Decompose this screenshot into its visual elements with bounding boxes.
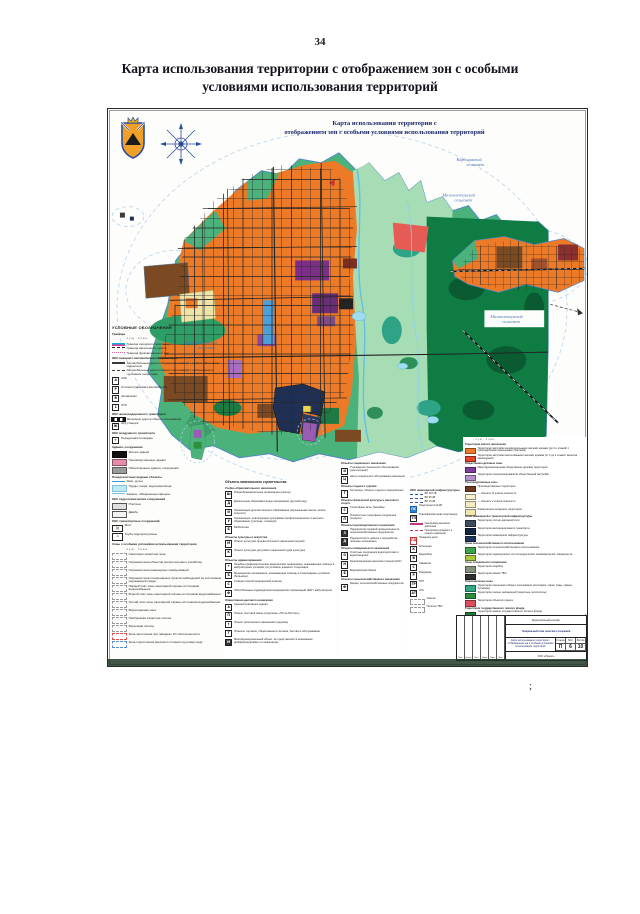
legend-label: Предприятия пищевой промышленности, сель… — [350, 529, 405, 535]
legend-swatch — [112, 617, 127, 624]
page-title: Карта использования территории с отображ… — [85, 60, 555, 96]
legend-label: Центр социального обслуживания населения — [350, 476, 405, 479]
legend-swatch: ПД — [410, 537, 417, 544]
legend-label: Граница населенного пункта — [127, 347, 221, 350]
legend-row: Автомобильные дороги общего пользования … — [112, 362, 221, 369]
legend-row: Б Библиотека — [225, 526, 335, 534]
map-sheet-title: Карта использования территории с отображ… — [218, 120, 551, 138]
legend-swatch — [465, 600, 476, 607]
legend-row: Ш Общеобразовательные организации (школы… — [225, 491, 335, 499]
legend-swatch — [112, 481, 125, 482]
legend-swatch: К — [410, 546, 417, 553]
legend-swatch — [112, 503, 127, 510]
legend-obj2-rows: Объекты социального назначения И Учрежде… — [341, 463, 405, 591]
legend-label: Резервуар — [419, 572, 460, 575]
compass-rose-icon — [160, 123, 202, 165]
legend-swatch: ✈ — [112, 437, 119, 444]
legend-row: Общественно-делового назначения — [225, 599, 335, 602]
legend-swatch: М — [225, 639, 232, 646]
legend-swatch: АТ — [410, 590, 417, 597]
legend-swatch — [112, 511, 127, 518]
legend-label: Объекты торговли, общественного питания,… — [234, 630, 335, 633]
legend-label: Библиотека — [234, 526, 335, 529]
legend-swatch: Д — [225, 500, 232, 507]
legend-swatch: А — [112, 377, 119, 384]
legend-left-rows: Границы сущ. план. Граница городского по… — [112, 333, 221, 648]
page-title-line2: условиями использования территорий — [202, 79, 438, 94]
legend-row: У Организации, реализующие программы про… — [225, 517, 335, 525]
legend-swatch — [112, 633, 127, 640]
legend-swatch: ≍ — [112, 533, 123, 540]
legend-label: Посадочная площадка — [121, 437, 221, 440]
legend-row: Объекты здравоохранения — [225, 559, 335, 562]
legend-swatch: М — [225, 540, 232, 547]
legend-row: сущ. план. — [112, 337, 221, 341]
legend-capital-construction: Объекты капитального строительства Учебн… — [223, 480, 337, 658]
legend-label: Зона подтопления (высокого стояния грунт… — [129, 641, 221, 644]
legend-label: Скважина — [419, 563, 460, 566]
legend-row: Ф Фермы, сельскохозяйственные предприяти… — [341, 583, 405, 591]
legend-row: Н Канализационная насосная станция (КНС) — [341, 561, 405, 569]
legend-swatch: Д — [341, 538, 348, 545]
legend-row: Охранная зона инженерных коммуникаций — [112, 569, 221, 576]
legend-label: Объекты культуры и искусства — [225, 536, 335, 539]
legend-label: Территория лесных насаждений (защитные л… — [478, 592, 585, 595]
legend-label: Водонапорная башня — [350, 570, 405, 573]
stamp-contract: Муниципальный контракт — [506, 616, 586, 625]
legend-row: Газопровод среднего и низкого давления — [410, 530, 460, 536]
legend-label: ГРП — [419, 581, 460, 584]
stamp-sheet-name: Карта использования территории с отображ… — [506, 638, 556, 651]
legend-label: Коммунально-складские территории — [478, 509, 585, 512]
legend-row: Б Водонапорная башня — [341, 570, 405, 578]
stage-value: П — [556, 644, 566, 651]
legend-label: Фермы, сельскохозяйственные предприятия — [350, 583, 405, 586]
legend-label: Территория улично-дорожной сети — [478, 520, 585, 523]
svg-text:сельсовет: сельсовет — [502, 319, 520, 324]
legend-row: Б Медицинские организации, оказывающие п… — [225, 572, 335, 580]
legend-swatch: С — [225, 581, 232, 588]
legend-label: Территория садоводческих или огородничес… — [478, 554, 585, 557]
legend-label: Общеобразовательные организации (школы) — [234, 491, 335, 494]
legend-row: И Организации дополнительного образовани… — [225, 509, 335, 517]
legend-swatch — [465, 486, 476, 493]
legend-label: Дамба — [129, 511, 221, 514]
legend-obj1-rows: Учебно-образовательного назначения Ш Общ… — [225, 487, 335, 646]
legend-swatch — [410, 530, 423, 531]
legend-row: + Лечебно-профилактические медицинские о… — [225, 563, 335, 571]
legend-label: Объект культурно-досугового назначения (… — [234, 549, 335, 552]
legend-swatch — [112, 641, 127, 648]
legend-swatch — [112, 362, 125, 364]
legend-swatch: Р — [112, 386, 119, 393]
legend-swatch — [410, 599, 425, 606]
legend-label: Газопровод высокого давления — [425, 523, 460, 529]
legend-row: Зоны с особыми условиями использования т… — [112, 543, 221, 546]
legend-label: Береговая полоса — [129, 625, 221, 628]
legend-label: сущ. план. — [127, 548, 221, 551]
legend-row: Плотина — [112, 503, 221, 510]
legend-row: Учебно-образовательного назначения — [225, 487, 335, 490]
legend-label: Плоскостные спортивные сооружения (стади… — [350, 515, 405, 521]
legend-label: — объекты IV класса опасности — [478, 493, 585, 496]
legend-swatch: Н — [341, 561, 348, 568]
legend-row: Автомобильные дороги общего пользования … — [112, 369, 221, 376]
legend-row: В Автовокзал — [112, 395, 221, 403]
legend-label: Обособленные подразделения медицинских о… — [234, 589, 335, 592]
legend-swatch: З — [341, 530, 348, 537]
legend-label: Учреждения социального обслуживания (дом… — [350, 467, 405, 473]
legend-swatch — [112, 561, 127, 568]
legend-label: АТС — [419, 590, 460, 593]
legend-title: Объекты капитального строительства — [225, 481, 335, 485]
legend-label: ОКС воздушного транспорта — [112, 432, 221, 435]
legend-label: Стоянки (парковки) автомобилей — [121, 386, 221, 389]
stamp-grid-label: Дата — [497, 616, 505, 660]
legend-swatch — [112, 343, 125, 346]
legend-label: Железные дороги общего пользования — [127, 418, 221, 421]
legend-row: Ф Обособленные подразделения медицинских… — [225, 589, 335, 597]
legend-social-objects: Объекты социального назначения И Учрежде… — [339, 460, 407, 658]
legend-label: Предприятия по добыче и переработке поле… — [350, 538, 405, 544]
legend-row: А Административные здания — [225, 603, 335, 611]
legend-swatch: Ш — [225, 491, 232, 498]
legend-swatch — [112, 601, 127, 608]
legend-label: Ж/д станция — [121, 422, 221, 425]
legend-label: Охранная зона стационарных пунктов наблю… — [129, 577, 221, 584]
eastern-settlement — [451, 237, 585, 293]
legend-label: Многофункциональный объект, не представл… — [234, 638, 335, 644]
legend-row: Т Объекты торговли, общественного питани… — [225, 630, 335, 638]
legend-row: Ж Ж/д станция — [112, 422, 221, 430]
legend-row: Жилые здания — [112, 451, 221, 458]
sheets-value: 10 — [576, 644, 586, 651]
stamp-grid-label: Кол.уч — [465, 616, 473, 660]
legend-row: ≍ Трубы водопропускные — [112, 533, 221, 541]
legend-swatch: Ф — [341, 584, 348, 591]
legend-row: Санитарно-защитная зона — [112, 553, 221, 560]
legend-label: Зона затопления при паводках 1% обеспече… — [129, 633, 221, 636]
legend-label: Объект культурно-просветительного назнач… — [234, 540, 335, 543]
legend-row: ВЛ 35 кВ — [410, 497, 460, 500]
legend-label: Зоны с особыми условиями использования т… — [112, 543, 221, 546]
legend-row: Второй пояс зоны санитарной охраны источ… — [112, 593, 221, 600]
legend-swatch: А — [225, 604, 232, 611]
legend-label: Дошкольные образовательные организации (… — [234, 500, 335, 503]
legend-row: † Объект религиозного назначения (церков… — [225, 621, 335, 629]
legend-swatch — [465, 566, 476, 573]
legend-row: О Очистные сооружения водоподготовки и в… — [341, 552, 405, 560]
legend-label: АЗС — [121, 377, 221, 380]
legend-label: Очистные сооружения водоподготовки и вод… — [350, 552, 405, 558]
legend-row: Третий пояс зоны санитарной охраны источ… — [112, 601, 221, 608]
legend-label: Котельная — [419, 546, 460, 549]
stamp-pages: Стадия Лист Листов П 6 10 — [556, 638, 586, 651]
legend-row: Зона затопления при паводках 1% обеспече… — [112, 633, 221, 640]
stamp-grid-label: Лист — [473, 616, 481, 660]
legend-label: ОКС внешнего автомобильного транспорта — [112, 357, 221, 360]
legend-swatch — [465, 467, 476, 474]
legend-label: Территория застройки малоэтажными жилыми… — [478, 455, 585, 461]
legend-row: И Учреждения социального обслуживания (д… — [341, 467, 405, 475]
legend-row: Дамба — [112, 511, 221, 518]
legend-row: Первый пояс зоны санитарной охраны источ… — [112, 585, 221, 592]
legend-swatch: С — [410, 564, 417, 571]
legend-swatch — [112, 577, 127, 584]
page-number: 34 — [0, 36, 640, 48]
legend-row: Общественные здания, сооружения — [112, 467, 221, 474]
legend-functional-zones: сущ. план. Территории жилого назначения … — [463, 437, 587, 614]
direction-arrow — [550, 304, 583, 315]
legend-label: Объект религиозного назначения (церковь) — [234, 621, 335, 624]
legend-row: ВЛ 110 кВ — [410, 493, 460, 496]
legend-swatch: И — [341, 468, 348, 475]
legend-label: Спортивные залы, бассейны — [350, 507, 405, 510]
legend-label: Автовокзал — [121, 395, 221, 398]
legend-row: 1 СТО — [112, 404, 221, 412]
stamp-grid-label: Подп. — [489, 616, 497, 660]
legend-swatch: Б — [225, 526, 232, 533]
legend-swatch — [112, 352, 125, 353]
legend-swatch — [112, 493, 125, 494]
legend-swatch: П — [341, 516, 348, 523]
legend-swatch — [410, 607, 425, 614]
legend-label: Общественно-делового назначения — [225, 599, 335, 602]
legend-swatch: Т — [225, 630, 232, 637]
legend-label: Территория железнодорожного транспорта — [478, 528, 585, 531]
legend-label: Плотина — [129, 503, 221, 506]
legend-label: Территория инженерной инфраструктуры — [478, 535, 585, 538]
legend-label: Третий пояс зоны санитарной охраны источ… — [129, 601, 221, 604]
legend-swatch: 1 — [112, 404, 119, 411]
legend-label: — объекты V класса опасности — [478, 501, 585, 504]
legend-swatch — [465, 448, 476, 455]
legend-swatch — [112, 609, 127, 616]
legend-row: ПД Пожарное депо — [410, 537, 460, 545]
legend-swatch: В — [112, 395, 119, 402]
legend-swatch — [112, 593, 127, 600]
legend-swatch: Б — [341, 570, 348, 577]
legend-swatch — [410, 494, 423, 495]
legend-swatch: Ц — [341, 476, 348, 483]
legend-label: Пруды, озера, водохранилища — [129, 485, 221, 488]
legend-label: Территория кладбищ — [478, 566, 585, 569]
legend-label: Лечебно-профилактические медицинские орг… — [234, 563, 335, 569]
legend-label: Объект почтовой связи (отделение «Почта … — [234, 612, 335, 615]
legend-title: УСЛОВНЫЕ ОБОЗНАЧЕНИЯ — [112, 326, 221, 330]
legend-label: Объекты здравоохранения — [225, 559, 335, 562]
legend-row: Территория объектов отдыха — [465, 600, 585, 607]
legend-swatch — [465, 547, 476, 554]
legend-swatch — [112, 459, 127, 466]
legend-row: В Водозабор — [410, 554, 460, 562]
legend-swatch — [112, 585, 127, 592]
legend-row: Зона подтопления (высокого стояния грунт… — [112, 641, 221, 648]
legend-row: Производственные здания — [112, 459, 221, 466]
stamp-grid-label: Изм. — [457, 616, 465, 660]
legend-label: Канализационная насосная станция (КНС) — [350, 561, 405, 564]
legend-swatch: В — [410, 555, 417, 562]
legend-row: К Объект культурно-досугового назначения… — [225, 549, 335, 557]
legend-label: Охранная зона инженерных коммуникаций — [129, 569, 221, 572]
legend-swatch: П — [225, 612, 232, 619]
legend-row: М Многофункциональный объект, не предста… — [225, 638, 335, 646]
legend-label: Полигон ТБО — [427, 606, 460, 609]
legend-row: Объекты физической культуры и массового … — [341, 500, 405, 506]
legend-swatch — [112, 467, 127, 474]
legend-row: Р Стоянки (парковки) автомобилей — [112, 386, 221, 394]
legend-swatch — [112, 347, 125, 348]
legend-swatch: ПС — [410, 506, 417, 513]
legend-swatch: Б — [225, 572, 232, 579]
stamp-grid-label: №док — [481, 616, 489, 660]
legend-row: Водоохранная зона — [112, 609, 221, 616]
legend-conventional-signs: УСЛОВНЫЕ ОБОЗНАЧЕНИЯ Границы сущ. план. … — [112, 326, 221, 656]
legend-swatch: У — [225, 518, 232, 525]
legend-row: Прибрежная защитная полоса — [112, 617, 221, 624]
legend-label: Граница функциональных зон — [127, 352, 221, 355]
legend-swatch: ТП — [410, 515, 417, 522]
legend-row: К Котельная — [410, 546, 460, 554]
legend-label: Свалка — [427, 598, 460, 601]
legend-label: Трубы водопропускные — [125, 533, 221, 536]
legend-row: Пруды, озера, водохранилища — [112, 485, 221, 492]
legend-label: Первый пояс зоны санитарной охраны источ… — [129, 585, 221, 592]
legend-row: П Плоскостные спортивные сооружения (ста… — [341, 515, 405, 523]
legend-label: сущ. план. — [127, 337, 221, 340]
legend-row: П Объект почтовой связи (отделение «Почт… — [225, 612, 335, 620]
legend-row: Газопровод высокого давления — [410, 523, 460, 529]
legend-swatch — [112, 625, 127, 632]
legend-label: Административные здания — [234, 603, 335, 606]
legend-label: Организации, реализующие программы профе… — [234, 517, 335, 523]
legend-label: Мост — [125, 524, 221, 527]
svg-text:сельсовет: сельсовет — [467, 162, 485, 167]
legend-row: Граница населенного пункта — [112, 347, 221, 350]
legend-eng-rows: ВЛ 110 кВ ВЛ 35 кВ ВЛ 10 кВ ПС Подстанци… — [410, 493, 460, 613]
stamp-grid: Изм.Кол.учЛист№докПодп.Дата — [457, 616, 505, 660]
legend-row: ОКС внешнего автомобильного транспорта — [112, 357, 221, 360]
map-sheet: Кардоникский сельсовет Малозеленчукский … — [107, 108, 588, 667]
legend-swatch: )( — [112, 525, 123, 532]
coat-of-arms-icon — [119, 117, 147, 159]
legend-label: Территория застройки индивидуальными жил… — [478, 448, 585, 454]
stray-mark: ; — [529, 680, 532, 692]
legend-label: Прибрежная защитная полоса — [129, 617, 221, 620]
legend-label: Производственные территории — [478, 486, 585, 489]
legend-row: Полигон ТБО — [410, 606, 460, 613]
legend-swatch — [112, 370, 125, 371]
legend-row: ✈ Посадочная площадка — [112, 437, 221, 445]
legend-swatch — [410, 523, 423, 524]
legend-row: ТП Трансформаторная подстанция — [410, 514, 460, 522]
legend-label: Территория озеленения общего пользования… — [478, 585, 585, 591]
legend-swatch — [410, 498, 423, 499]
legend-swatch: + — [225, 563, 232, 570]
legend-label: Территория земель государственного лесно… — [478, 611, 585, 614]
legend-label: Трансформаторная подстанция — [419, 514, 460, 517]
legend-row: ОКС воздушного транспорта — [112, 432, 221, 435]
legend-label: Территория сельскохозяйственного использ… — [478, 547, 585, 550]
legend-label: Производственные здания — [129, 459, 221, 462]
legend-swatch — [465, 528, 476, 535]
legend-row: Береговая полоса — [112, 625, 221, 632]
legend-row: А АЗС — [112, 377, 221, 385]
stamp-revision-grid: Изм.Кол.учЛист№докПодп.Дата — [457, 616, 506, 660]
legend-row: Территория улично-дорожной сети — [465, 520, 585, 527]
legend-row: С Станция скорой медицинской помощи — [225, 580, 335, 588]
legend-label: Гостиницы, объекты отдыха и оздоровления — [350, 490, 405, 493]
legend-zones-rows: сущ. план. Территории жилого назначения … — [465, 439, 585, 638]
legend-label: Общественные здания, сооружения — [129, 467, 221, 470]
legend-row: — объекты V класса опасности — [465, 501, 585, 508]
legend-swatch: Г — [341, 490, 348, 497]
legend-label: Территория специализированной общественн… — [478, 474, 585, 477]
legend-swatch — [465, 585, 476, 592]
legend-label: Автомобильные дороги общего пользования … — [127, 369, 221, 376]
legend-label: Жилые здания — [129, 451, 221, 454]
legend-swatch: К — [225, 549, 232, 556]
legend-label: Объекты физической культуры и массового … — [341, 500, 405, 506]
legend-row: М Объект культурно-просветительного назн… — [225, 540, 335, 548]
legend-label: Пожарное депо — [419, 537, 460, 540]
legend-label: Станция скорой медицинской помощи — [234, 580, 335, 583]
legend-label: Водоохранная зона — [129, 609, 221, 612]
legend-swatch — [465, 494, 476, 501]
legend-label: Территория объектов отдыха — [478, 600, 585, 603]
page-title-line1: Карта использования территории с отображ… — [122, 61, 519, 76]
legend-row: ПС Подстанция 110 кВ — [410, 505, 460, 513]
legend-label: Территория свалки ТБО — [478, 573, 585, 576]
legend-label: Охранная зона объектов электросетевого х… — [129, 561, 221, 564]
legend-swatch — [465, 520, 476, 527]
legend-row: Охранная зона стационарных пунктов наблю… — [112, 577, 221, 584]
legend-label: Автомобильные дороги общего пользования … — [127, 362, 221, 369]
stamp-project: Генеральный план сельского поселения — [506, 625, 586, 638]
legend-swatch: ГР — [410, 581, 417, 588]
legend-swatch: Р — [410, 572, 417, 579]
legend-row: С Скважина — [410, 563, 460, 571]
legend-swatch — [410, 502, 423, 503]
legend-swatch: С — [341, 507, 348, 514]
legend-label: Многофункциональная общественно-деловая … — [478, 467, 585, 470]
legend-engineering-infrastructure: ОКС инженерной инфраструктуры ВЛ 110 кВ … — [408, 488, 462, 656]
legend-label: сущ. план. — [476, 439, 585, 442]
legend-swatch: Ф — [225, 590, 232, 597]
legend-row: Граница функциональных зон — [112, 352, 221, 355]
legend-label: Каналы, обводненные карьеры — [127, 493, 221, 496]
legend-label: Водозабор — [419, 554, 460, 557]
legend-row: Каналы, обводненные карьеры — [112, 493, 221, 496]
document-page: 34 Карта использования территории с отоб… — [0, 0, 640, 914]
legend-label: Подстанция 110 кВ — [419, 505, 460, 508]
legend-swatch — [465, 501, 476, 508]
legend-label: Санитарно-защитная зона — [129, 553, 221, 556]
legend-row: АТ АТС — [410, 590, 460, 598]
legend-swatch: Ж — [112, 423, 119, 430]
legend-label: Медицинские организации, оказывающие пом… — [234, 572, 335, 578]
legend-swatch — [112, 485, 127, 492]
svg-text:сельсовет: сельсовет — [455, 198, 473, 203]
legend-swatch: И — [225, 509, 232, 516]
title-block: Изм.Кол.учЛист№докПодп.Дата Муниципальны… — [456, 615, 587, 661]
legend-row: Р Резервуар — [410, 572, 460, 580]
legend-row: З Предприятия пищевой промышленности, се… — [341, 529, 405, 537]
legend-swatch — [112, 569, 127, 576]
legend-row: ГР ГРП — [410, 581, 460, 589]
sheet-value: 6 — [566, 644, 576, 651]
legend-swatch — [112, 451, 127, 458]
